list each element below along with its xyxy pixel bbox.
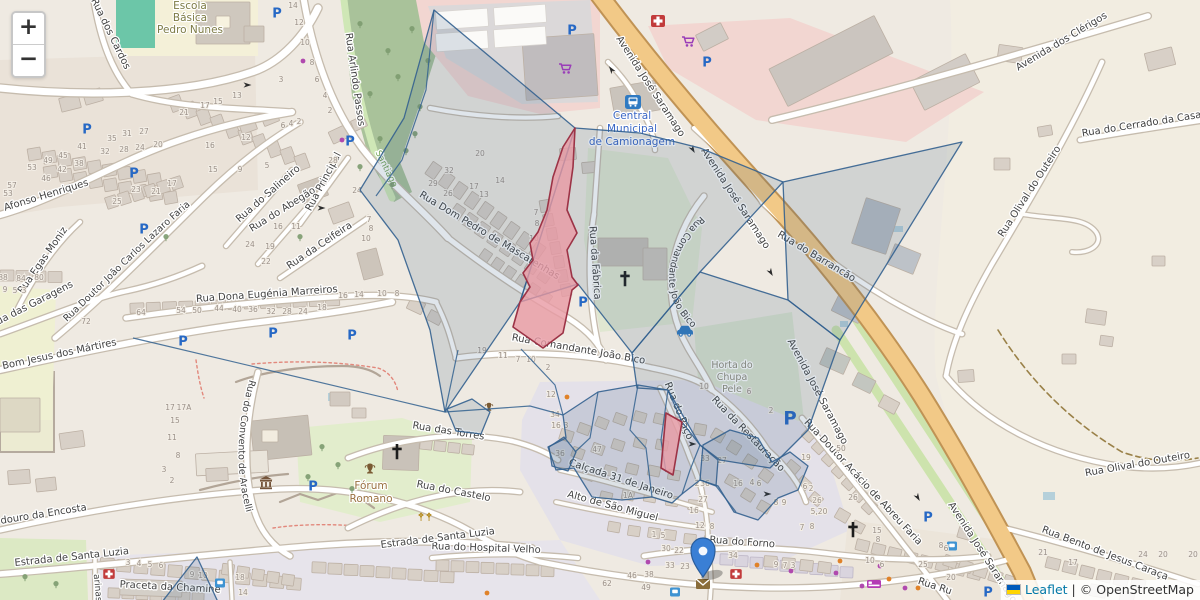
parking-icon	[82, 123, 92, 138]
house-number: 16	[551, 421, 561, 430]
dot-p-icon	[903, 586, 908, 591]
house-number: 20	[1158, 550, 1168, 559]
house-number: 9	[774, 560, 779, 569]
house-number: 49	[641, 583, 651, 592]
house-number: 7	[800, 523, 805, 532]
house-number: 15	[872, 526, 882, 535]
house-number: 22	[674, 546, 684, 555]
dot-p-icon	[646, 560, 651, 565]
attribution-bar: Leaflet | © OpenStreetMap	[1001, 580, 1200, 600]
house-number: 9	[238, 165, 243, 174]
house-number: 6	[944, 544, 949, 553]
house-number: 24	[245, 240, 255, 249]
house-number: 16	[273, 222, 283, 231]
house-number: 49	[43, 156, 53, 165]
bus-stop-icon	[215, 579, 225, 588]
house-number: 4	[323, 91, 328, 100]
zoom-in-button[interactable]: +	[13, 13, 44, 45]
osm-link[interactable]: © OpenStreetMap	[1080, 582, 1194, 597]
parking-icon	[129, 167, 139, 182]
house-number: 44	[214, 304, 224, 313]
parking-icon	[983, 586, 993, 600]
house-number: 5,20	[811, 507, 828, 516]
house-number: 11	[498, 351, 508, 360]
zoom-control: + −	[11, 11, 46, 78]
dot-o-icon	[485, 591, 490, 596]
house-number: 34	[728, 551, 738, 560]
bus-station-icon	[625, 95, 641, 109]
house-number: 6	[880, 560, 885, 569]
house-number: 30	[661, 544, 671, 553]
house-number: 12	[294, 18, 304, 27]
house-number: 50	[192, 306, 202, 315]
house-number: 9	[3, 285, 8, 294]
house-number: 5	[148, 560, 153, 569]
dot-p-icon	[834, 571, 839, 576]
dot-o-icon	[838, 559, 843, 564]
house-number: 8	[395, 289, 400, 298]
house-number: 19	[265, 242, 275, 251]
house-number: 28	[119, 145, 129, 154]
dot-p-icon	[301, 59, 306, 64]
house-number: 26	[848, 493, 858, 502]
house-number: 18	[317, 303, 327, 312]
house-number: 23	[131, 185, 141, 194]
house-number: 40	[232, 305, 242, 314]
house-number: 10	[377, 289, 387, 298]
house-number: 7	[367, 215, 372, 224]
house-number: 84	[16, 274, 26, 283]
house-number: 3	[162, 465, 167, 474]
house-number: 88	[0, 273, 8, 282]
house-number: 7	[516, 355, 521, 364]
dot-o-icon	[565, 395, 570, 400]
house-number: 62	[602, 579, 612, 588]
house-number: 20	[946, 573, 956, 582]
parking-icon	[308, 480, 318, 495]
house-number: 10	[300, 38, 310, 47]
house-number: 33	[665, 561, 675, 570]
house-number: 2	[546, 363, 551, 372]
house-number: 24	[298, 307, 308, 316]
house-number: 80	[34, 273, 44, 282]
house-number: 10	[865, 556, 875, 565]
parking-icon	[567, 24, 577, 39]
house-number: 17A	[177, 403, 193, 412]
house-number: 17	[167, 179, 177, 188]
poi-label: Romano	[350, 493, 393, 505]
house-number: 38	[74, 159, 84, 168]
house-number: 5	[265, 161, 270, 170]
attribution-separator: |	[1072, 582, 1076, 597]
house-number: 17	[200, 101, 210, 110]
house-number: 11	[291, 222, 301, 231]
post-icon	[696, 579, 710, 589]
house-number: 72	[81, 317, 91, 326]
house-number: 12	[546, 390, 556, 399]
house-number: 38	[644, 570, 654, 579]
house-number: 27	[139, 127, 149, 136]
house-number: 3	[791, 561, 796, 570]
house-number: 8	[810, 522, 815, 531]
house-number: 17	[1068, 558, 1078, 567]
dot-p-icon	[340, 138, 345, 143]
house-number: 4	[289, 119, 294, 128]
parking-icon	[139, 223, 149, 238]
parking-icon	[345, 135, 355, 150]
dot-o-icon	[755, 563, 760, 568]
house-number: 21	[1038, 548, 1048, 557]
ukraine-flag-icon	[1006, 584, 1021, 595]
house-number: 54	[176, 306, 186, 315]
house-number: 53	[3, 189, 13, 198]
house-number: 64	[136, 308, 146, 317]
zoom-out-button[interactable]: −	[13, 45, 44, 76]
house-number: 12	[695, 521, 705, 530]
house-number: 18	[235, 573, 245, 582]
parking-icon	[347, 329, 357, 344]
house-number: 36	[248, 305, 258, 314]
house-number: 8	[369, 224, 374, 233]
house-number: 14	[238, 588, 248, 597]
house-number: 8	[176, 451, 181, 460]
house-number: 14	[354, 290, 364, 299]
house-number: 24	[135, 143, 145, 152]
house-number: 16	[205, 141, 215, 150]
house-number: 45	[58, 151, 68, 160]
map-canvas[interactable]: PRua dos CardosRua Arlindo PassosAfonso …	[0, 0, 1200, 600]
house-number: 2	[297, 117, 302, 126]
house-number: 16	[689, 506, 699, 515]
house-number: 2	[328, 106, 333, 115]
house-number: 19	[801, 453, 811, 462]
house-number: 31	[122, 129, 132, 138]
poi-label: Central	[613, 110, 651, 122]
dot-o-icon	[887, 577, 892, 582]
house-number: 41	[77, 142, 87, 151]
house-number: 35	[107, 134, 117, 143]
house-number: 7	[783, 561, 788, 570]
house-number: 22	[261, 257, 271, 266]
house-number: 6	[281, 121, 286, 130]
house-number: 25	[918, 560, 928, 569]
house-number: 12	[241, 133, 251, 142]
house-number: 8	[710, 522, 715, 531]
house-number: 3	[279, 75, 284, 84]
poi-label: Pedro Nunes	[157, 24, 223, 36]
house-number: 50	[836, 444, 846, 453]
poi-label: Básica	[173, 12, 207, 24]
house-number: 10	[361, 234, 371, 243]
house-number: 25	[112, 197, 122, 206]
parking-icon	[578, 296, 588, 311]
house-number: 26	[812, 496, 822, 505]
poi-label: Fórum	[354, 480, 387, 492]
house-number: 14	[288, 1, 298, 10]
pharmacy-icon	[103, 569, 114, 579]
parking-icon	[178, 335, 188, 350]
house-number: 6	[315, 75, 320, 84]
house-number: 3	[126, 558, 131, 567]
house-number: 2	[170, 476, 175, 485]
house-number: 2	[809, 484, 814, 493]
parking-icon	[702, 56, 712, 71]
house-number: 8	[876, 535, 881, 544]
house-number: 17	[165, 403, 175, 412]
house-number: 16	[338, 291, 348, 300]
house-number: 46	[41, 174, 51, 183]
parking-icon	[923, 511, 933, 526]
house-number: 6	[803, 482, 808, 491]
bus-stop-icon	[947, 542, 957, 551]
house-number: 15	[208, 165, 218, 174]
parking-icon	[268, 327, 278, 342]
house-number: 1	[652, 530, 657, 539]
dot-o-icon	[916, 586, 921, 591]
house-number: 28	[282, 307, 292, 316]
house-number: 15	[213, 97, 223, 106]
house-number: 42	[57, 165, 67, 174]
house-number: 21	[179, 108, 189, 117]
house-number: 46	[627, 571, 637, 580]
pharmacy-icon	[730, 569, 741, 579]
house-number: 11	[167, 433, 177, 442]
house-number: 28	[328, 156, 338, 165]
bus-stop-icon	[670, 588, 680, 597]
house-number: 3	[22, 286, 27, 295]
house-number: 9	[782, 498, 787, 507]
leaflet-link[interactable]: Leaflet	[1025, 582, 1068, 597]
house-number: 8	[310, 58, 315, 67]
house-number: 5	[13, 286, 18, 295]
house-number: 15	[170, 416, 180, 425]
house-number: 24	[1138, 550, 1148, 559]
house-number: 20	[1188, 550, 1198, 559]
house-number: 5	[661, 531, 666, 540]
house-number: 13	[232, 91, 242, 100]
map-container[interactable]: PRua dos CardosRua Arlindo PassosAfonso …	[0, 0, 1200, 600]
house-number: 32	[100, 147, 110, 156]
house-number: 20	[153, 140, 163, 149]
house-number: 53	[27, 163, 37, 172]
house-number: 6	[159, 561, 164, 570]
parking-icon	[272, 7, 282, 22]
house-number: 27	[698, 495, 708, 504]
bed-icon	[867, 580, 881, 588]
dot-p-icon	[860, 584, 865, 589]
house-number: 21	[151, 187, 161, 196]
house-number: 23	[680, 562, 690, 571]
poi-label: Escola	[173, 0, 207, 12]
hospital-icon	[651, 15, 665, 27]
house-number: 4	[137, 559, 142, 568]
house-number: 32	[266, 307, 276, 316]
